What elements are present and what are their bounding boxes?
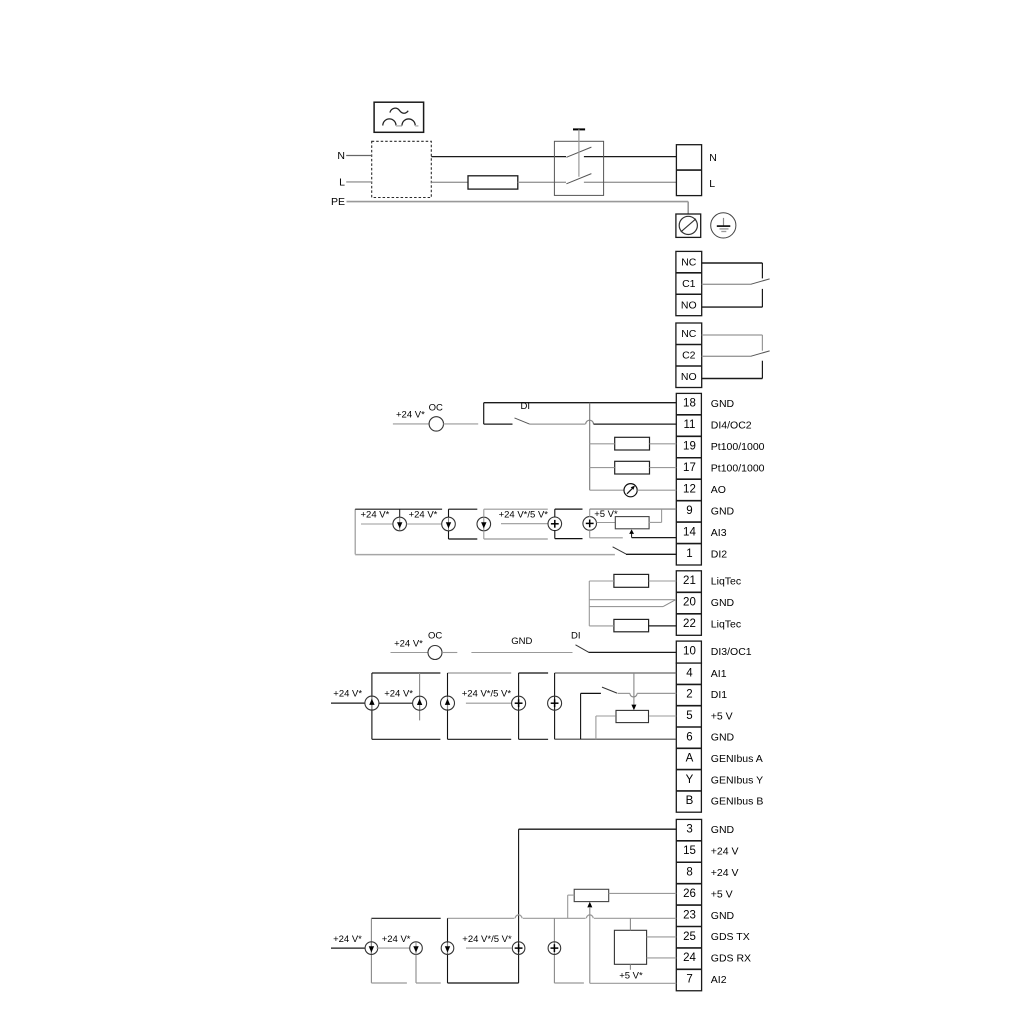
svg-text:LiqTec: LiqTec xyxy=(711,576,741,588)
svg-text:+24 V*: +24 V* xyxy=(384,689,413,700)
svg-text:10: 10 xyxy=(683,646,696,658)
svg-text:DI1: DI1 xyxy=(711,689,728,701)
svg-text:A: A xyxy=(686,753,694,765)
svg-text:Y: Y xyxy=(686,774,694,786)
svg-text:19: 19 xyxy=(683,441,696,453)
svg-text:NO: NO xyxy=(681,299,697,311)
svg-text:7: 7 xyxy=(686,974,692,986)
svg-text:+24 V*/5 V*: +24 V*/5 V* xyxy=(462,689,512,700)
svg-text:AI2: AI2 xyxy=(711,974,727,986)
svg-text:OC: OC xyxy=(428,631,442,642)
svg-text:Pt100/1000: Pt100/1000 xyxy=(711,462,765,474)
svg-text:GDS RX: GDS RX xyxy=(711,953,751,965)
svg-text:+5 V: +5 V xyxy=(711,888,733,900)
svg-text:AO: AO xyxy=(711,484,726,496)
svg-text:OC: OC xyxy=(429,402,443,413)
svg-text:+24 V*: +24 V* xyxy=(333,689,362,700)
svg-text:GDS TX: GDS TX xyxy=(711,931,750,943)
svg-text:L: L xyxy=(709,178,715,190)
svg-text:1: 1 xyxy=(686,548,692,560)
svg-text:B: B xyxy=(686,795,694,807)
svg-text:9: 9 xyxy=(686,505,692,517)
svg-text:+24 V*: +24 V* xyxy=(382,934,411,945)
svg-text:2: 2 xyxy=(686,689,692,701)
svg-text:GENIbus B: GENIbus B xyxy=(711,796,764,808)
svg-text:26: 26 xyxy=(683,888,696,900)
svg-text:GND: GND xyxy=(711,910,735,922)
svg-text:C1: C1 xyxy=(682,278,696,290)
svg-text:18: 18 xyxy=(683,398,696,410)
svg-text:GND: GND xyxy=(711,505,735,517)
svg-text:DI: DI xyxy=(521,401,531,412)
svg-text:4: 4 xyxy=(686,667,693,679)
svg-text:+24 V*: +24 V* xyxy=(361,510,390,521)
svg-text:N: N xyxy=(709,152,717,164)
svg-text:+24 V*: +24 V* xyxy=(396,409,425,420)
svg-text:+5 V*: +5 V* xyxy=(594,509,618,520)
svg-text:11: 11 xyxy=(683,419,695,431)
svg-text:25: 25 xyxy=(683,931,696,943)
svg-text:NC: NC xyxy=(681,256,697,268)
svg-text:AI1: AI1 xyxy=(711,668,727,680)
svg-text:GND: GND xyxy=(511,636,532,647)
svg-text:L: L xyxy=(339,176,345,188)
svg-text:+24 V*: +24 V* xyxy=(394,639,423,650)
svg-text:GND: GND xyxy=(711,398,735,410)
svg-text:+24 V*/5 V*: +24 V*/5 V* xyxy=(462,934,512,945)
svg-text:NO: NO xyxy=(681,371,697,383)
svg-text:+24 V: +24 V xyxy=(711,867,739,879)
svg-text:DI4/OC2: DI4/OC2 xyxy=(711,420,752,432)
svg-text:C2: C2 xyxy=(682,350,696,362)
svg-text:14: 14 xyxy=(683,526,696,538)
svg-text:+24 V*: +24 V* xyxy=(409,510,438,521)
svg-text:17: 17 xyxy=(683,462,696,474)
svg-text:3: 3 xyxy=(686,824,692,836)
svg-text:AI3: AI3 xyxy=(711,527,727,539)
svg-text:+5 V: +5 V xyxy=(711,710,733,722)
svg-text:NC: NC xyxy=(681,328,697,340)
svg-text:+5 V*: +5 V* xyxy=(619,971,643,982)
svg-text:12: 12 xyxy=(683,484,696,496)
svg-text:5: 5 xyxy=(686,710,692,722)
svg-text:GENIbus A: GENIbus A xyxy=(711,753,763,765)
svg-text:+24 V*/5 V*: +24 V*/5 V* xyxy=(499,510,549,521)
svg-text:6: 6 xyxy=(686,731,692,743)
svg-text:24: 24 xyxy=(683,952,696,964)
svg-text:LiqTec: LiqTec xyxy=(711,619,741,631)
svg-text:8: 8 xyxy=(686,867,692,879)
svg-text:Pt100/1000: Pt100/1000 xyxy=(711,441,765,453)
svg-text:N: N xyxy=(337,150,345,162)
svg-text:DI: DI xyxy=(571,631,581,642)
svg-text:GND: GND xyxy=(711,824,735,836)
svg-text:20: 20 xyxy=(683,597,696,609)
svg-text:DI3/OC1: DI3/OC1 xyxy=(711,646,752,658)
svg-text:22: 22 xyxy=(683,618,696,630)
svg-text:+24 V*: +24 V* xyxy=(333,934,362,945)
svg-text:DI2: DI2 xyxy=(711,548,728,560)
svg-text:GND: GND xyxy=(711,732,735,744)
svg-text:15: 15 xyxy=(683,845,696,857)
svg-text:PE: PE xyxy=(331,196,345,208)
svg-text:21: 21 xyxy=(683,575,696,587)
svg-text:GENIbus Y: GENIbus Y xyxy=(711,774,763,786)
svg-text:+24 V: +24 V xyxy=(711,846,739,858)
svg-text:GND: GND xyxy=(711,597,735,609)
svg-text:23: 23 xyxy=(683,909,696,921)
